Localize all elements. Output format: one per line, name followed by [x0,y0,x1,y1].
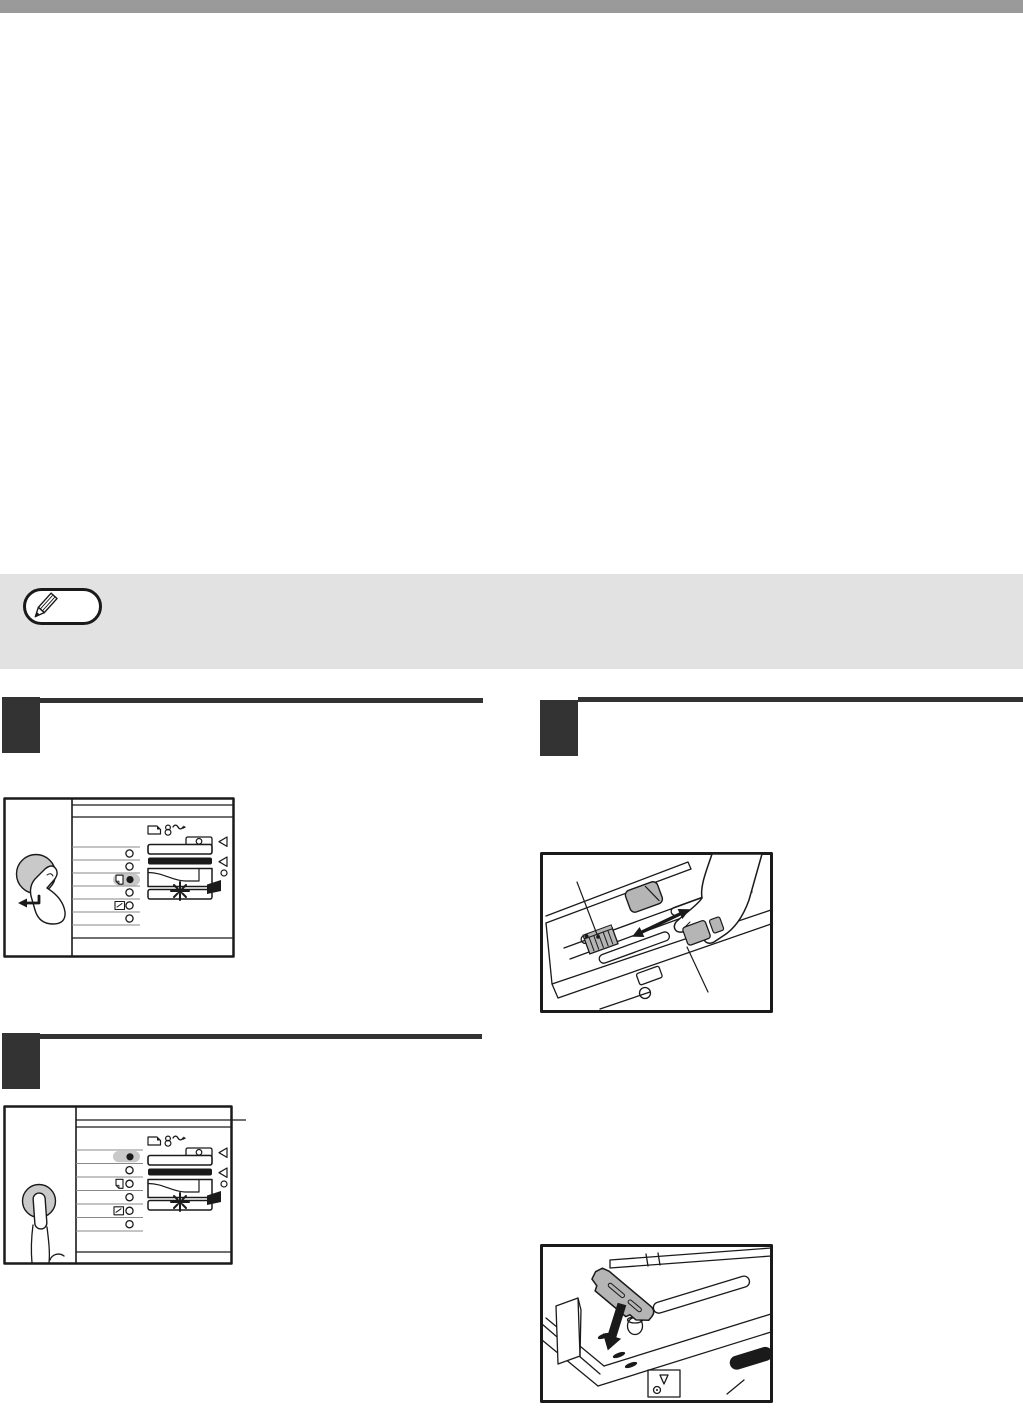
step-rule-left-2 [40,1034,482,1039]
selected-indicator-lamp [126,876,133,883]
figure-tray-slide-guide [540,852,773,1013]
figure-operation-panel-size [3,1105,246,1265]
figure-tray-insert-guide [540,1244,773,1403]
hand-pointing-icon [33,1193,47,1230]
note-box [0,574,1023,669]
page-top-rule [0,0,1023,13]
step-marker-left-1 [2,697,40,753]
manual-page [0,0,1023,1412]
pencil-icon [29,591,59,623]
step-marker-right-1 [540,700,578,756]
step-marker-left-2 [2,1033,40,1089]
step-rule-right-1 [578,697,1023,702]
figure-operation-panel-enter [3,797,235,958]
selected-indicator-lamp [126,1153,133,1160]
step-rule-left-1 [40,698,483,703]
note-icon-badge [23,588,102,625]
